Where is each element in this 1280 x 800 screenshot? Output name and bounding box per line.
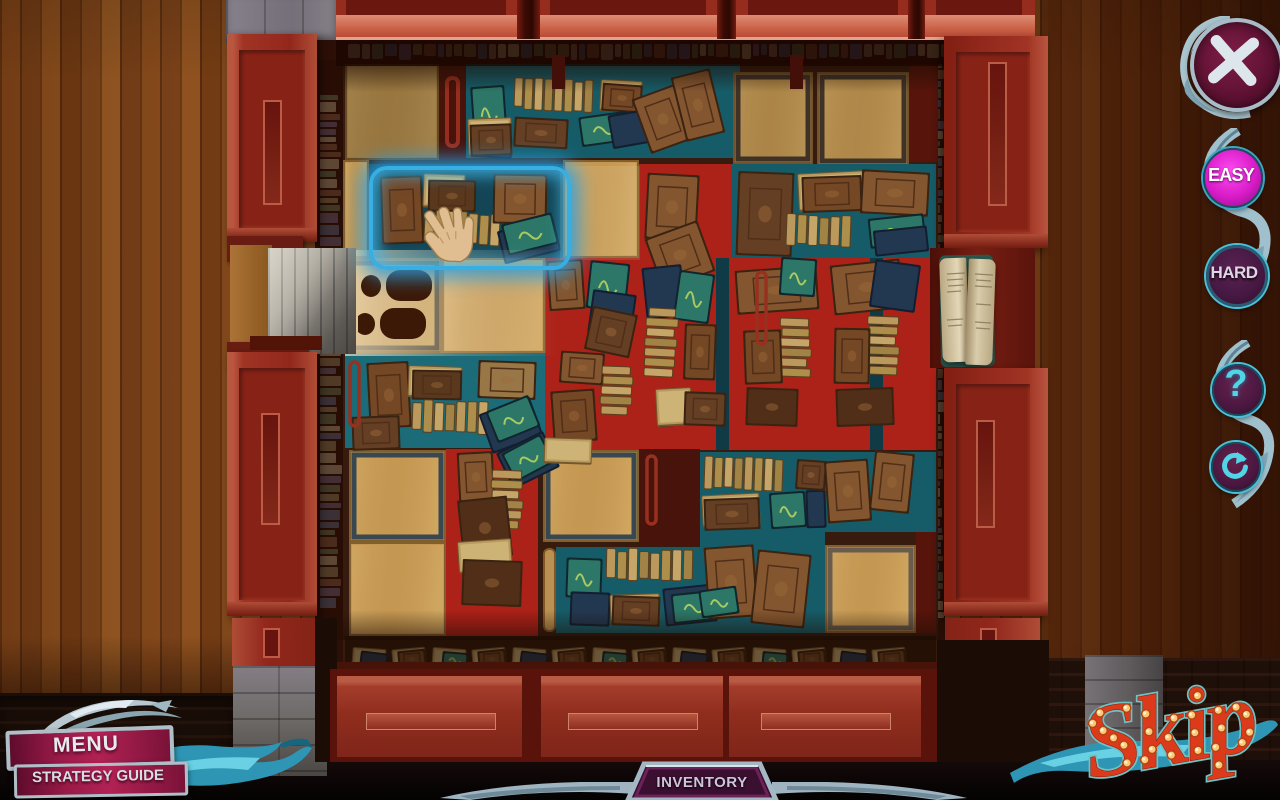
svg-text:Skip: Skip [1082,658,1263,800]
